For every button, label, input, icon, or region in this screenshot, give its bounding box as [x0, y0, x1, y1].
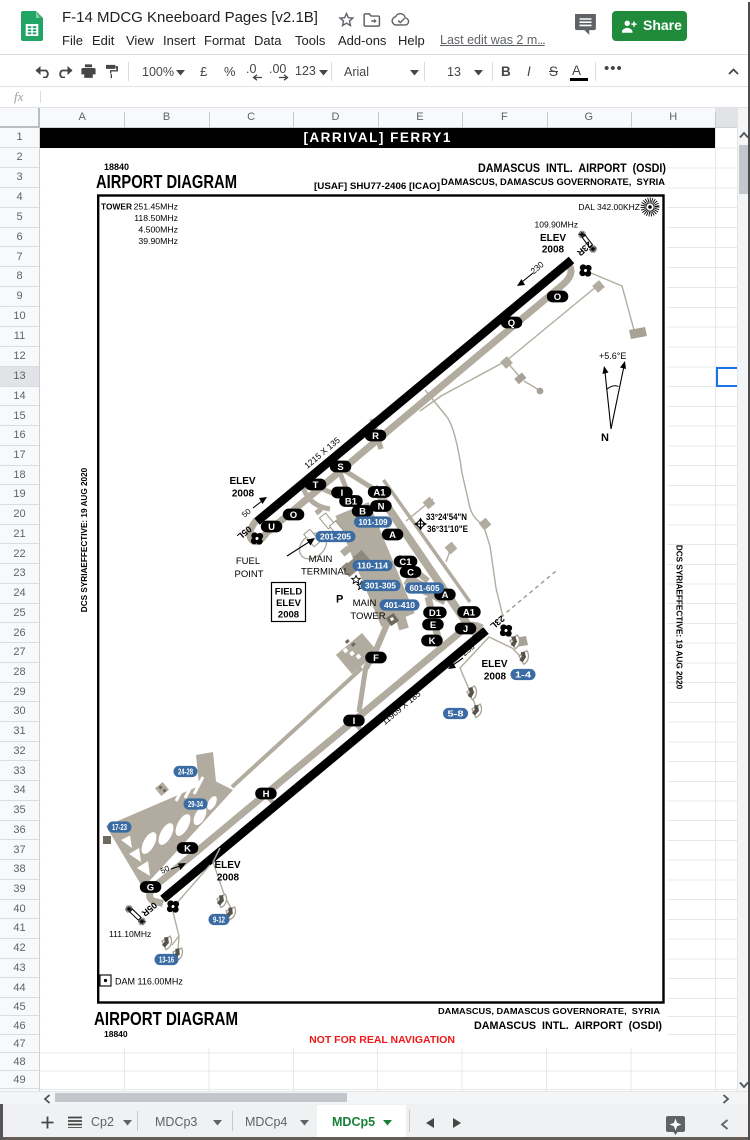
svg-text:TERMINAL: TERMINAL — [301, 567, 349, 578]
svg-text:17-23: 17-23 — [112, 822, 127, 832]
svg-text:2008: 2008 — [542, 245, 565, 256]
svg-text:5-8: 5-8 — [448, 709, 465, 719]
svg-text:B: B — [359, 507, 366, 518]
svg-text:AIRPORT DIAGRAM: AIRPORT DIAGRAM — [94, 1008, 238, 1029]
svg-text:36°31'10"E: 36°31'10"E — [427, 524, 468, 535]
svg-text:109.90MHz: 109.90MHz — [535, 220, 578, 230]
svg-text:Q: Q — [508, 318, 515, 329]
svg-text:F: F — [373, 653, 379, 664]
svg-text:H: H — [263, 789, 270, 800]
svg-text:A: A — [389, 530, 396, 541]
svg-text:ELEV: ELEV — [229, 476, 255, 487]
svg-text:O: O — [554, 292, 561, 303]
svg-text:DAMASCUS, DAMASCUS GOVERNORATE: DAMASCUS, DAMASCUS GOVERNORATE, SYRIA — [441, 177, 665, 188]
svg-text:R: R — [372, 431, 379, 442]
svg-text:13-16: 13-16 — [159, 955, 174, 965]
svg-text:A: A — [442, 590, 449, 601]
svg-text:I: I — [353, 716, 356, 727]
svg-text:C: C — [407, 568, 414, 579]
svg-text:2008: 2008 — [232, 489, 255, 500]
svg-text:2008: 2008 — [484, 672, 507, 683]
svg-text:T: T — [313, 480, 319, 491]
svg-text:P: P — [336, 594, 343, 606]
svg-text:2008: 2008 — [278, 610, 299, 621]
svg-text:401-410: 401-410 — [384, 600, 415, 610]
svg-text:DAMASCUS INTL. AIRPORT (OSD: DAMASCUS INTL. AIRPORT (OSDI) — [478, 163, 666, 175]
svg-text:DCS SYRIAEFFECTIVE: 19 AUG 202: DCS SYRIAEFFECTIVE: 19 AUG 2020 — [80, 467, 89, 612]
svg-text:J: J — [463, 624, 468, 635]
svg-text:18840: 18840 — [104, 1029, 128, 1039]
svg-text:A1: A1 — [373, 488, 386, 499]
svg-text:39.90MHz: 39.90MHz — [138, 236, 178, 246]
svg-text:301-305: 301-305 — [365, 581, 396, 591]
svg-text:K: K — [429, 636, 436, 647]
svg-text:ELEV: ELEV — [540, 233, 566, 244]
svg-text:1-4: 1-4 — [515, 670, 532, 680]
svg-text:S: S — [337, 462, 343, 473]
svg-text:111.10MHz: 111.10MHz — [109, 929, 151, 939]
svg-text:POINT: POINT — [234, 569, 263, 580]
svg-text:MAIN: MAIN — [353, 598, 377, 609]
svg-text:DAM 116.00MHz: DAM 116.00MHz — [115, 977, 183, 987]
svg-text:4.500MHz: 4.500MHz — [138, 225, 178, 235]
svg-text:33°24'54"N: 33°24'54"N — [426, 512, 467, 523]
svg-text:E: E — [430, 620, 436, 631]
svg-text:201-205: 201-205 — [320, 532, 351, 542]
svg-text:A1: A1 — [463, 608, 476, 619]
svg-text:TOWER: TOWER — [350, 611, 385, 622]
svg-text:G: G — [147, 883, 154, 894]
svg-text:AIRPORT DIAGRAM: AIRPORT DIAGRAM — [96, 171, 237, 192]
svg-text:29-34: 29-34 — [188, 799, 203, 809]
svg-text:DAL 342.00KHZ: DAL 342.00KHZ — [578, 202, 640, 212]
svg-text:ELEV: ELEV — [214, 860, 240, 871]
svg-text:U: U — [268, 522, 275, 533]
svg-text:N: N — [378, 502, 385, 513]
svg-text:N: N — [601, 432, 609, 444]
svg-text:118.50MHz: 118.50MHz — [134, 213, 178, 223]
svg-text:FIELD: FIELD — [275, 587, 303, 598]
svg-text:MAIN: MAIN — [309, 554, 333, 565]
svg-text:[USAF] SHU77-2406 [ICAO]: [USAF] SHU77-2406 [ICAO] — [314, 181, 440, 192]
svg-text:251.45MHz: 251.45MHz — [134, 202, 178, 212]
svg-text:601-605: 601-605 — [410, 583, 440, 593]
svg-text:DCS SYRIAEFFECTIVE: 19 AUG 202: DCS SYRIAEFFECTIVE: 19 AUG 2020 — [675, 545, 684, 690]
svg-text:D1: D1 — [429, 608, 442, 619]
svg-text:NOT FOR REAL NAVIGATION: NOT FOR REAL NAVIGATION — [309, 1034, 455, 1046]
svg-text:2008: 2008 — [217, 873, 240, 884]
svg-text:9-12: 9-12 — [213, 915, 225, 925]
svg-text:TOWER: TOWER — [101, 202, 133, 212]
svg-text:24-28: 24-28 — [178, 767, 193, 777]
svg-text:FUEL: FUEL — [236, 556, 260, 567]
svg-text:DAMASCUS INTL. AIRPORT (OSD: DAMASCUS INTL. AIRPORT (OSDI) — [474, 1020, 662, 1032]
svg-text:K: K — [184, 844, 191, 855]
svg-text:ELEV: ELEV — [276, 598, 301, 609]
svg-text:101-109: 101-109 — [359, 517, 388, 527]
svg-text:+5.6°E: +5.6°E — [599, 351, 626, 361]
svg-text:110-114: 110-114 — [357, 561, 388, 571]
svg-text:DAMASCUS, DAMASCUS GOVERNORATE: DAMASCUS, DAMASCUS GOVERNORATE, SYRIA — [438, 1006, 660, 1016]
svg-text:ELEV: ELEV — [481, 659, 507, 670]
svg-text:O: O — [290, 510, 297, 521]
